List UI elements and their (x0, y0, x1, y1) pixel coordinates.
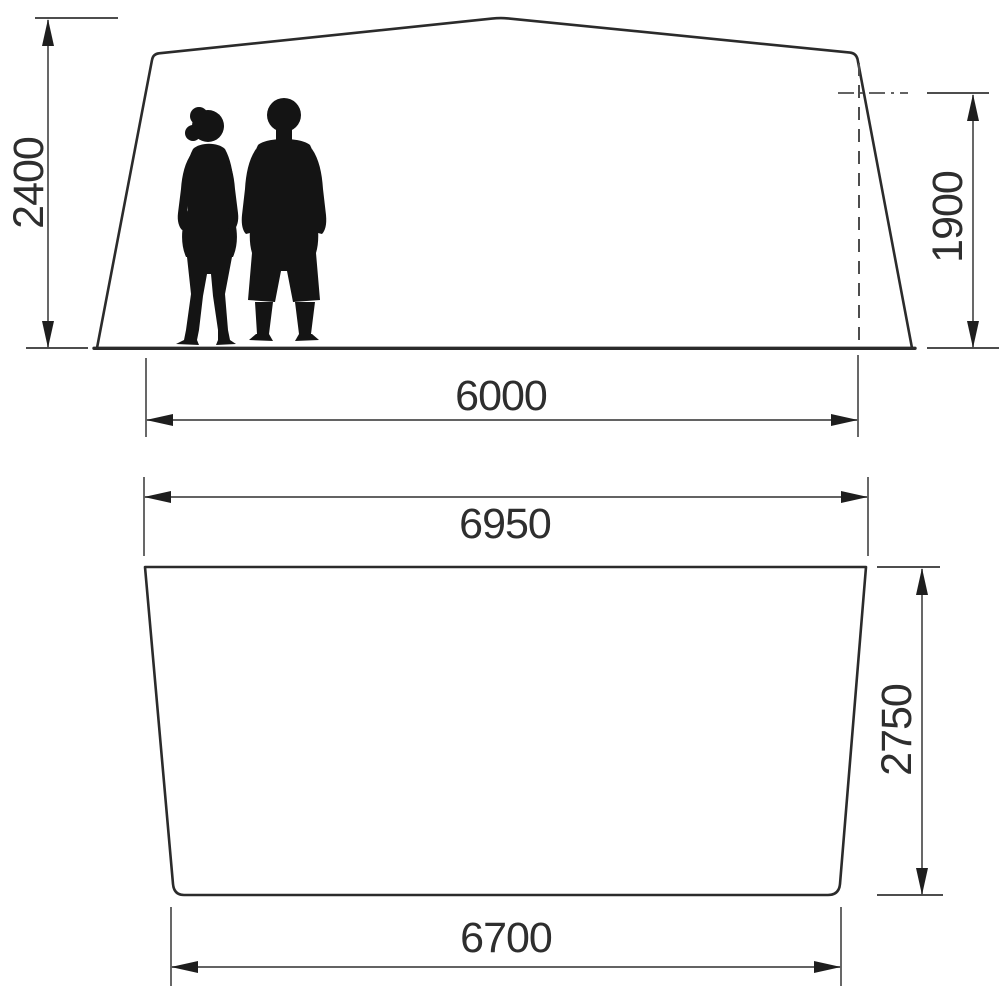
peak-height-dimension: 2400 (5, 18, 118, 348)
plan-bottom-width-label: 6700 (460, 914, 552, 962)
tent-dimension-diagram: 2400 1900 6000 (0, 0, 1000, 1000)
arrow-left-icon (171, 961, 198, 973)
arrow-right-icon (841, 491, 868, 503)
woman-silhouette (176, 107, 238, 345)
man-silhouette (242, 98, 327, 341)
arrow-up-icon (42, 19, 54, 46)
arrow-right-icon (814, 961, 841, 973)
arrow-down-icon (967, 321, 979, 348)
front-elevation-view: 2400 1900 6000 (5, 18, 999, 437)
side-height-label: 1900 (924, 171, 972, 263)
plan-top-width-label: 6950 (459, 500, 551, 548)
floor-width-label: 6000 (455, 372, 547, 420)
diagram-canvas: 2400 1900 6000 (0, 0, 1000, 1000)
arrow-left-icon (144, 491, 171, 503)
footprint-outline (145, 567, 866, 895)
plan-depth-dimension: 2750 (873, 567, 943, 895)
floor-width-dimension: 6000 (146, 355, 858, 437)
arrow-up-icon (916, 568, 928, 595)
arrow-down-icon (42, 321, 54, 348)
plan-top-width-dimension: 6950 (144, 477, 868, 556)
plan-depth-label: 2750 (873, 684, 921, 776)
footprint-plan-view: 6950 2750 6700 (144, 477, 943, 986)
side-height-dimension: 1900 (838, 63, 999, 348)
arrow-left-icon (146, 414, 173, 426)
plan-bottom-width-dimension: 6700 (171, 907, 841, 986)
arrow-up-icon (967, 94, 979, 121)
arrow-right-icon (831, 414, 858, 426)
shorts (248, 253, 320, 302)
peak-height-label: 2400 (5, 137, 53, 229)
hair-bun (185, 125, 201, 141)
arrow-down-icon (916, 868, 928, 895)
